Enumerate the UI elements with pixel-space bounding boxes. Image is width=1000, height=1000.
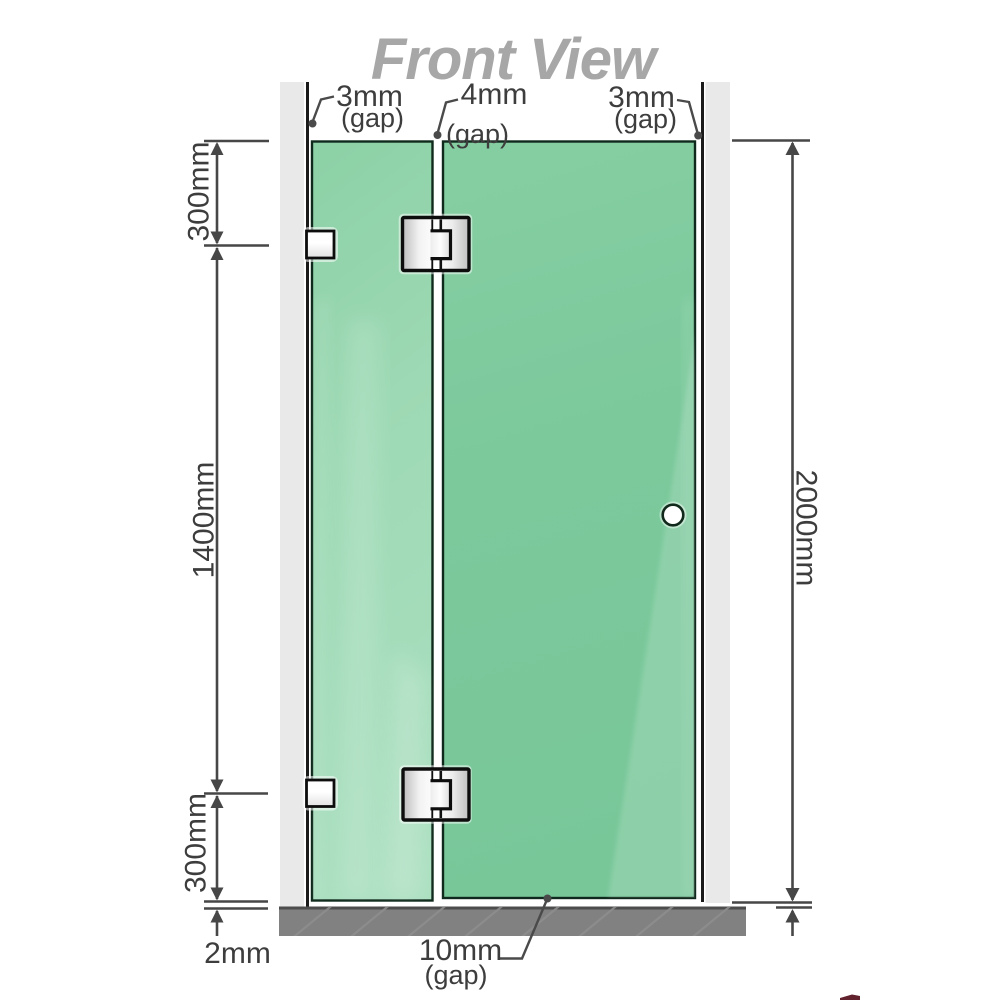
svg-text:4mm: 4mm <box>461 78 528 111</box>
svg-text:(gap): (gap) <box>614 104 677 134</box>
svg-text:(gap): (gap) <box>341 103 404 133</box>
svg-text:300mm: 300mm <box>183 141 216 241</box>
svg-text:(gap): (gap) <box>424 960 487 990</box>
svg-text:2000mm: 2000mm <box>790 470 823 587</box>
svg-text:(gap): (gap) <box>446 119 509 149</box>
svg-text:300mm: 300mm <box>180 793 213 893</box>
svg-text:2mm: 2mm <box>204 937 271 970</box>
svg-text:1400mm: 1400mm <box>188 462 221 579</box>
